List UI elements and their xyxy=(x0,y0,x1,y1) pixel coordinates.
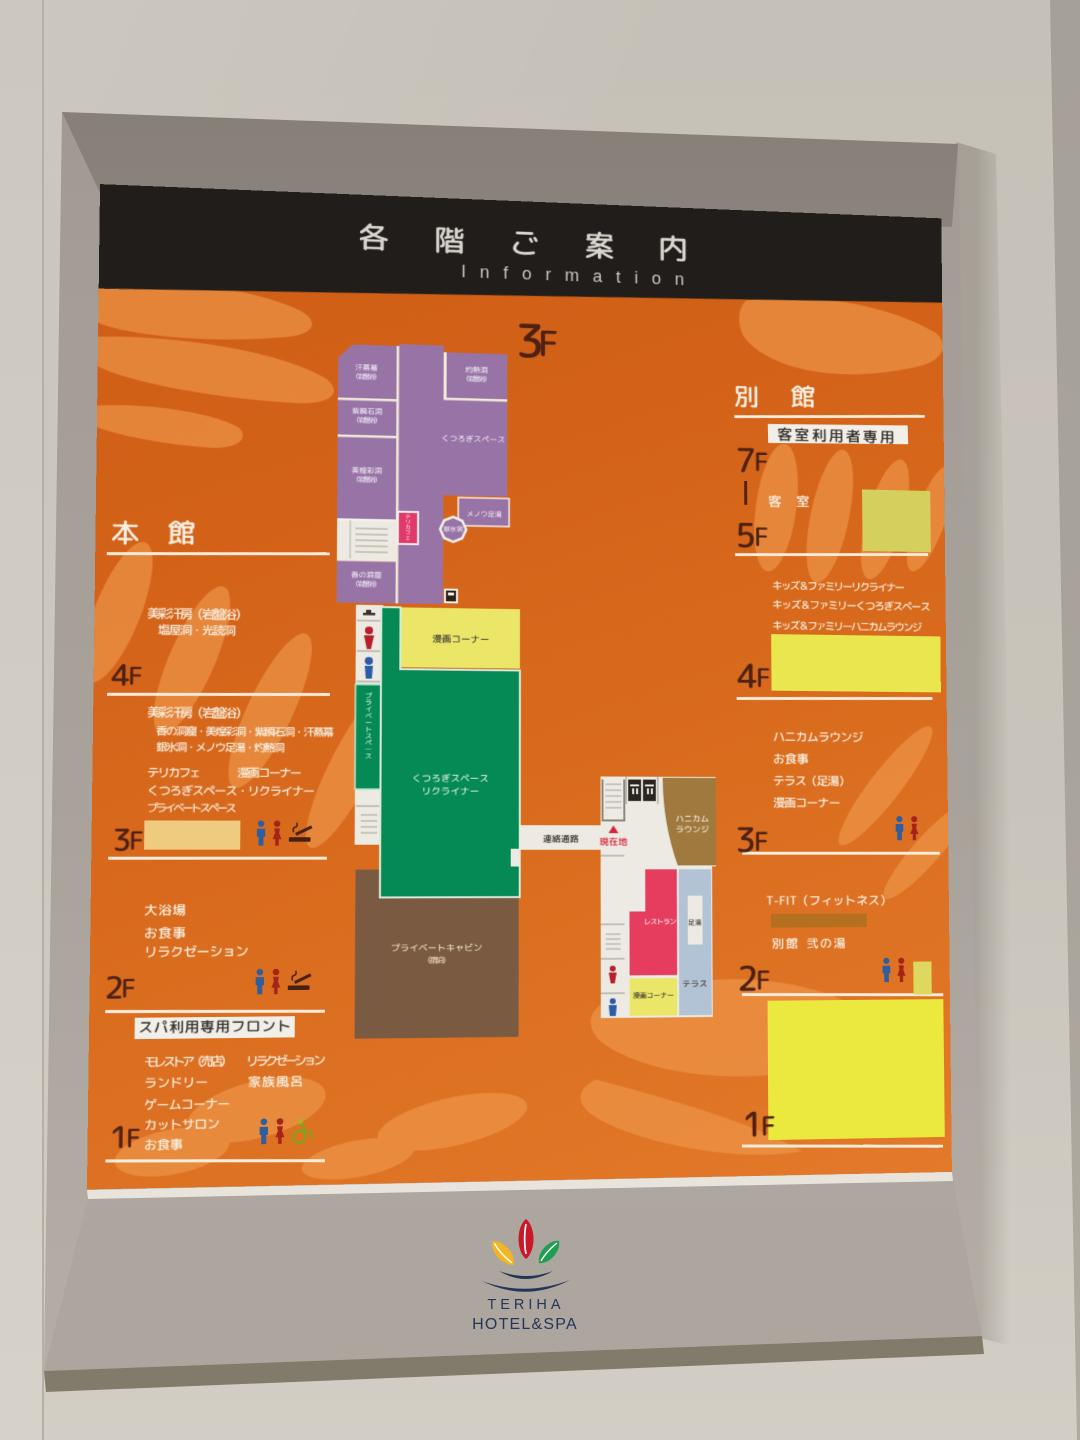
svg-text:TERIHA: TERIHA xyxy=(487,1297,564,1313)
svg-text:HOTEL&SPA: HOTEL&SPA xyxy=(472,1316,578,1333)
